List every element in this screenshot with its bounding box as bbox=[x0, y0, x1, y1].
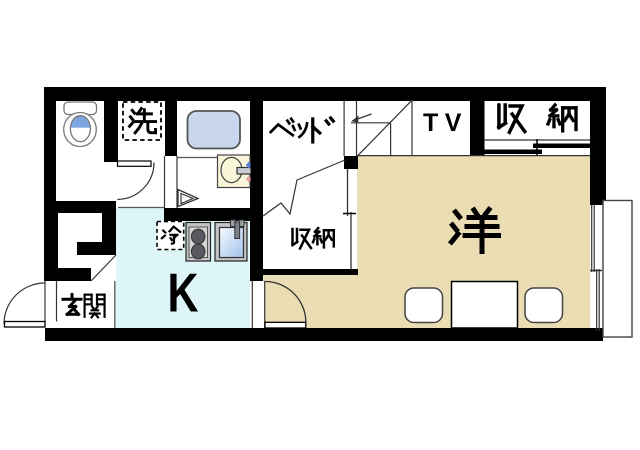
svg-text:K: K bbox=[168, 262, 199, 324]
svg-text:TV: TV bbox=[423, 109, 468, 137]
